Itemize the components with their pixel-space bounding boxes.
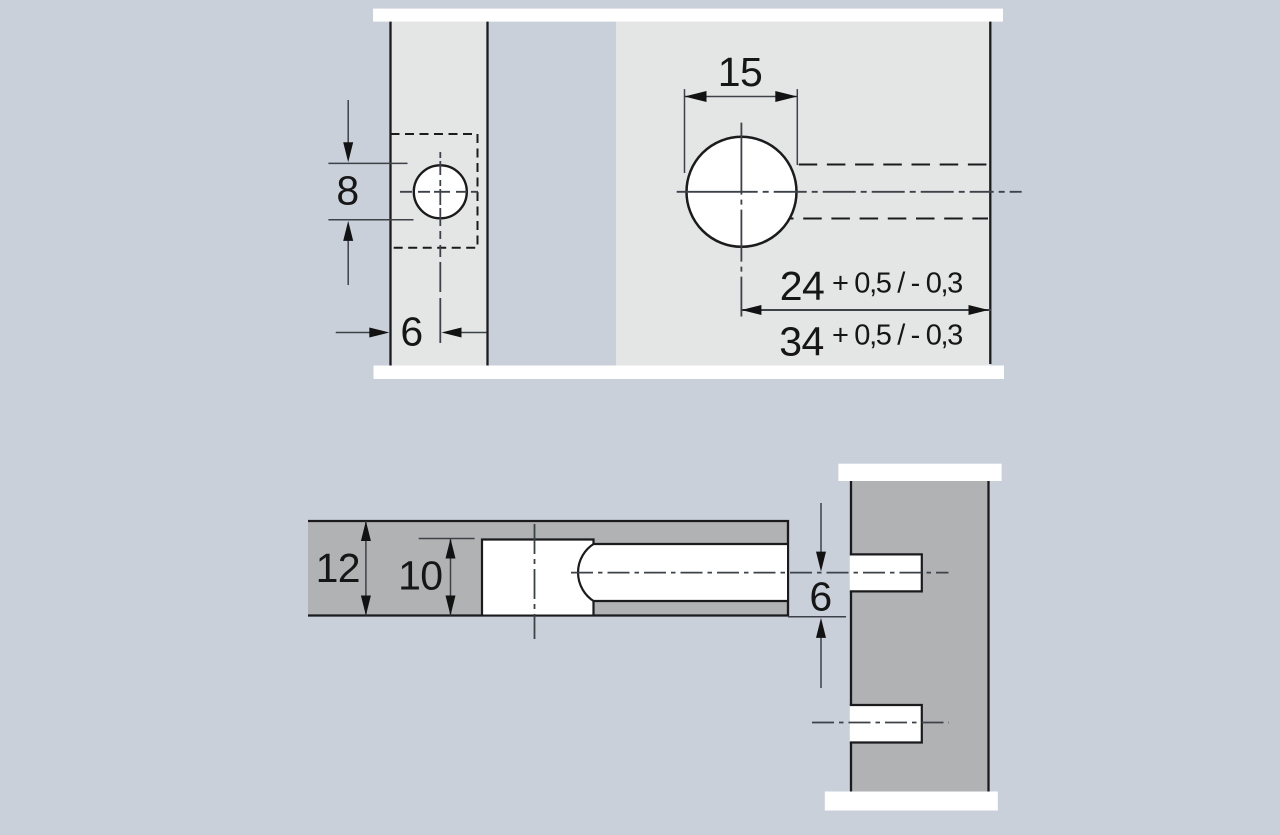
svg-text:34: 34	[779, 319, 823, 365]
svg-text:12: 12	[316, 545, 360, 591]
svg-text:+ 0,5 / - 0,3: + 0,5 / - 0,3	[832, 268, 962, 300]
svg-text:+ 0,5 / - 0,3: + 0,5 / - 0,3	[832, 320, 962, 352]
svg-text:24: 24	[780, 263, 824, 309]
svg-text:15: 15	[718, 49, 762, 95]
svg-text:8: 8	[336, 167, 358, 213]
svg-text:6: 6	[809, 573, 831, 619]
svg-text:10: 10	[398, 552, 442, 598]
svg-text:6: 6	[400, 308, 422, 354]
